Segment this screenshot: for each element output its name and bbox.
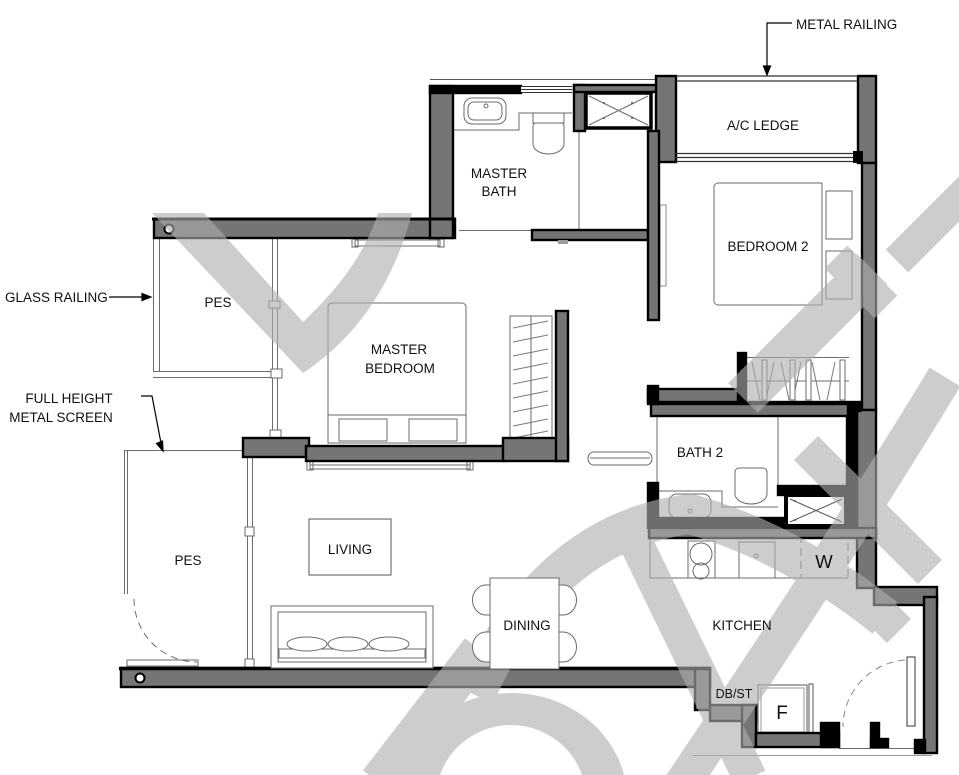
svg-text:BATH 2: BATH 2: [677, 445, 723, 460]
svg-text:METAL SCREEN: METAL SCREEN: [9, 410, 113, 425]
svg-text:DINING: DINING: [503, 618, 550, 633]
svg-text:PES: PES: [204, 295, 231, 310]
svg-text:BATH: BATH: [481, 184, 516, 199]
svg-text:W: W: [815, 551, 833, 572]
svg-text:MASTER: MASTER: [471, 166, 528, 181]
svg-text:BEDROOM: BEDROOM: [365, 361, 435, 376]
svg-text:KITCHEN: KITCHEN: [712, 618, 771, 633]
svg-text:A/C LEDGE: A/C LEDGE: [727, 118, 799, 133]
svg-text:LIVING: LIVING: [328, 542, 372, 557]
svg-text:GLASS RAILING: GLASS RAILING: [5, 290, 108, 305]
svg-text:FULL HEIGHT: FULL HEIGHT: [25, 391, 112, 406]
svg-text:METAL RAILING: METAL RAILING: [796, 17, 897, 32]
svg-text:PES: PES: [174, 553, 201, 568]
svg-text:MASTER: MASTER: [371, 342, 428, 357]
svg-text:F: F: [776, 703, 788, 724]
svg-text:DB/ST: DB/ST: [716, 687, 753, 701]
svg-text:BEDROOM 2: BEDROOM 2: [727, 239, 808, 254]
